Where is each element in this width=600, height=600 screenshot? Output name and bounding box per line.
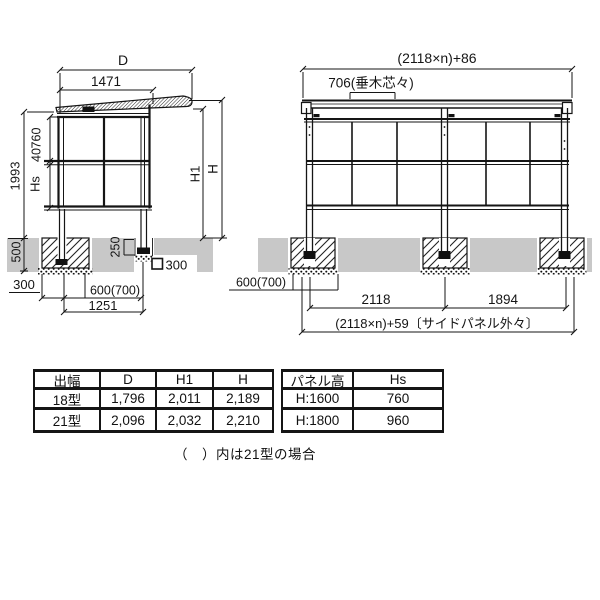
square-post-symbol [152,259,163,270]
dim-label-250: 250 [108,237,122,258]
panel-cell: 960 [354,410,442,430]
panel-cell: H:1600 [283,390,354,410]
post-base [439,251,451,259]
note-text: （ ）内は21型の場合 [174,443,316,463]
dim-label-1894: 1894 [488,292,519,307]
spec-header-depth: 出幅 [35,372,101,390]
dim-label-total-bottom: (2118×n)+59〔サイドパネル外々〕 [335,316,539,331]
spec-cell: 2,096 [101,410,157,430]
post-base [304,251,316,259]
rear-post-base [56,259,68,265]
dim-label-300: 300 [13,277,35,292]
dim-label-h: H [206,164,221,174]
dim-label-d: D [118,52,128,68]
technical-drawing-canvas: D 1471 1993 760 40 Hs H1 H 500 250 300 3… [0,0,600,600]
spec-cell: 2,210 [214,410,272,430]
dim-label-hs: Hs [27,176,42,192]
dim-label-500: 500 [9,242,23,263]
post-base [559,251,571,259]
side-elevation-drawing: D 1471 1993 760 40 Hs H1 H 500 250 300 3… [7,52,227,315]
panel-header-height: パネル高 [283,372,354,390]
dim-label-600-700-front: 600(700) [236,276,286,290]
dim-label-post-300: 300 [166,258,188,273]
dim-label-1993: 1993 [7,162,22,191]
front-post-base [137,248,150,255]
spec-cell: 2,189 [214,390,272,410]
dim-label-40: 40 [29,148,43,162]
spec-table: 出幅 D H1 H 18型 1,796 2,011 2,189 21型 2,09… [33,369,274,433]
dimension-ticks [299,66,577,335]
front-elevation-drawing: (2118×n)+86 706(垂木芯々) 600(700) 2118 1894… [229,50,592,335]
spec-cell: 21型 [35,410,101,430]
panel-height-table: パネル高 Hs H:1600 760 H:1800 960 [281,369,444,433]
post-screws [309,126,566,150]
dim-label-1251: 1251 [89,298,118,313]
dim-label-rafter-pitch: 706(垂木芯々) [328,76,414,91]
footings [288,238,587,275]
dim-label-1471: 1471 [91,74,121,89]
dim-label-h1: H1 [187,166,202,183]
spec-cell: 2,011 [157,390,214,410]
dim-label-600-700: 600(700) [90,284,140,298]
side-panel-frame [44,105,152,209]
roof-panel [56,96,192,112]
gravel-strip [136,255,154,262]
spec-cell: 2,032 [157,410,214,430]
dim-label-760: 760 [29,128,43,149]
dim-label-2118: 2118 [361,292,390,307]
spec-cell: 1,796 [101,390,157,410]
panel-cell: H:1800 [283,410,354,430]
dim-label-total-top: (2118×n)+86 [397,50,476,66]
panel-header-hs: Hs [354,372,442,390]
roof-gutter [83,107,95,113]
spec-header-d: D [101,372,157,390]
panel-cell: 760 [354,390,442,410]
spec-header-h: H [214,372,272,390]
posts [307,108,568,255]
spec-cell: 18型 [35,390,101,410]
spec-header-h1: H1 [157,372,214,390]
